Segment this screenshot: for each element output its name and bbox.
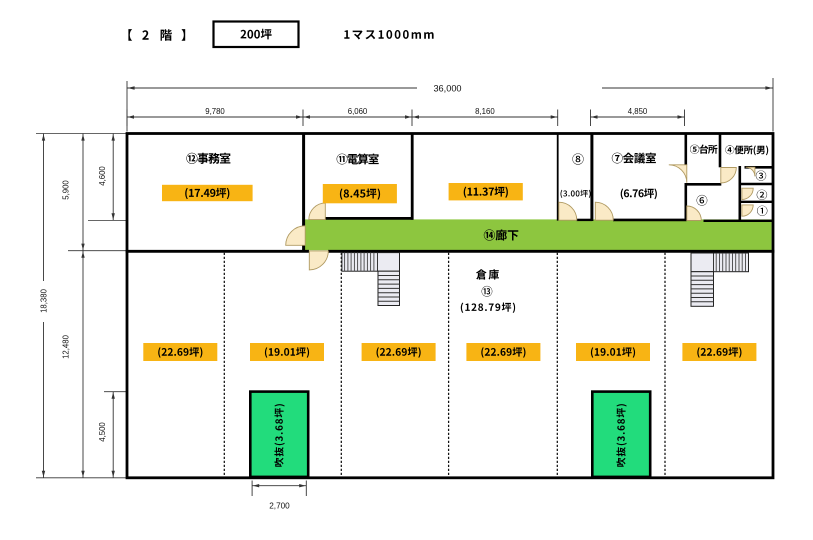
svg-text:5,900: 5,900 xyxy=(62,180,71,200)
svg-text:4,600: 4,600 xyxy=(98,166,107,186)
svg-text:12,480: 12,480 xyxy=(62,334,71,359)
svg-text:36,000: 36,000 xyxy=(433,83,461,93)
svg-text:2,700: 2,700 xyxy=(269,502,290,511)
svg-text:6,060: 6,060 xyxy=(348,107,368,116)
svg-text:8,160: 8,160 xyxy=(475,107,495,116)
svg-text:4,850: 4,850 xyxy=(628,107,648,116)
svg-text:4,500: 4,500 xyxy=(98,422,107,442)
svg-text:9,780: 9,780 xyxy=(205,107,225,116)
svg-text:18,380: 18,380 xyxy=(40,288,49,313)
